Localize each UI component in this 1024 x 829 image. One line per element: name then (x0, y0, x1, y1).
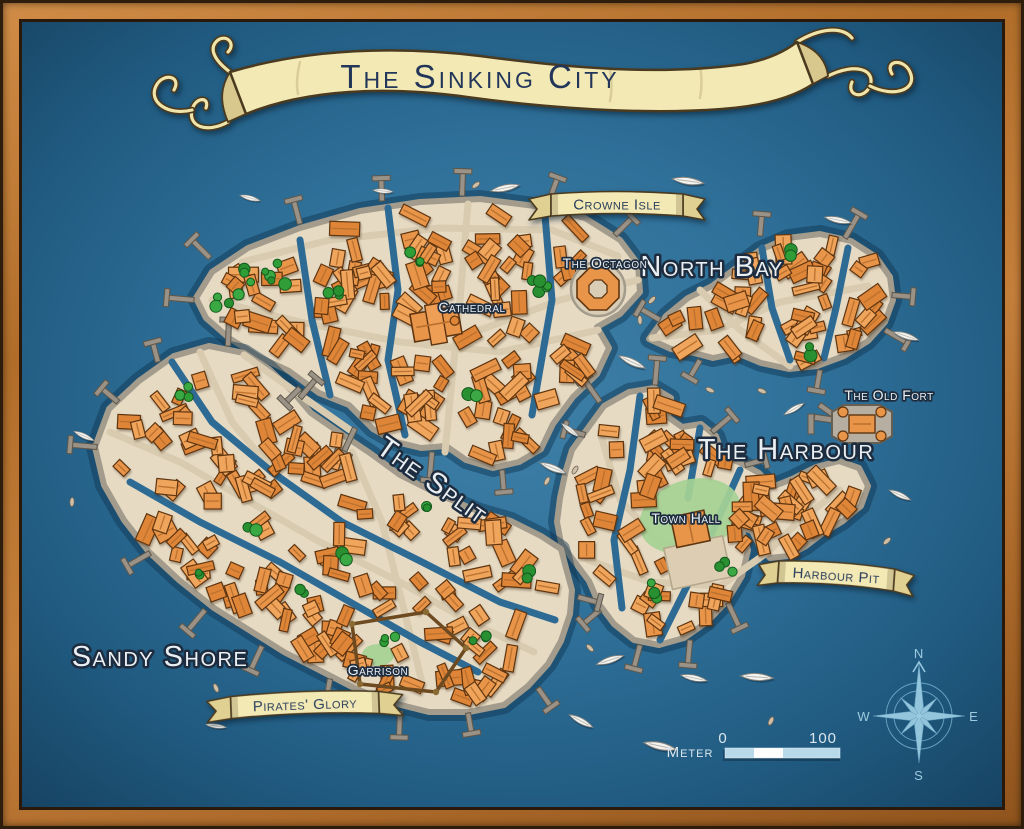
label-sandy-shore: Sandy Shore (72, 641, 249, 673)
building (609, 441, 624, 457)
tree (295, 584, 305, 594)
compass-east-label: E (969, 709, 979, 724)
map-frame: North Bay The Harbour Sandy Shore The Sp… (0, 0, 1024, 829)
label-garrison: Garrison (348, 662, 408, 678)
rowboat (638, 315, 643, 324)
compass-north-label: N (914, 646, 924, 661)
building (204, 493, 221, 509)
building (511, 290, 527, 314)
building (687, 306, 703, 330)
tree (268, 277, 275, 284)
building (360, 405, 376, 421)
tree (481, 631, 491, 641)
tree (471, 390, 483, 402)
tree (233, 289, 244, 300)
building (689, 592, 705, 608)
label-town-hall: Town Hall (651, 510, 720, 526)
building (485, 520, 502, 546)
building (807, 266, 823, 283)
tree (262, 268, 269, 275)
tree (195, 569, 202, 576)
banner-crowne-isle-text: Crowne Isle (573, 197, 661, 214)
building (414, 355, 431, 372)
tree (210, 300, 222, 312)
building (598, 424, 619, 437)
compass-south-label: S (914, 768, 924, 783)
building (432, 281, 446, 293)
map-title: The Sinking City (340, 58, 619, 95)
city-map-svg: North Bay The Harbour Sandy Shore The Sp… (22, 22, 1002, 807)
scale-segment-1 (725, 748, 754, 758)
scale-segment-2 (754, 748, 783, 758)
label-the-octagon: The Octagon (563, 255, 648, 271)
tree (785, 250, 796, 261)
tree (647, 579, 655, 587)
tree (423, 504, 431, 512)
scale-unit-label: Meter (667, 744, 714, 761)
building (329, 249, 345, 268)
building (330, 432, 343, 448)
tree (224, 299, 233, 308)
building (391, 367, 414, 376)
tree (333, 286, 343, 296)
tree (240, 268, 249, 277)
tree (250, 524, 262, 536)
tree (184, 393, 193, 402)
tree (405, 247, 416, 258)
tree (805, 343, 813, 351)
tree (534, 275, 546, 287)
building (393, 494, 405, 511)
tree (381, 635, 388, 642)
tree (340, 554, 352, 566)
map-canvas: North Bay The Harbour Sandy Shore The Sp… (19, 19, 1005, 810)
building (579, 542, 595, 559)
rowboat (70, 497, 75, 506)
compass-west-label: W (857, 709, 870, 724)
label-cathedral: Cathedral (438, 299, 505, 315)
label-the-harbour: The Harbour (698, 434, 875, 466)
scale-start-label: 0 (718, 730, 727, 747)
tree (184, 382, 193, 391)
tree (279, 278, 292, 291)
scale-end-label: 100 (809, 730, 837, 747)
building (356, 266, 372, 281)
wooden-frame: North Bay The Harbour Sandy Shore The Sp… (3, 3, 1021, 826)
building (169, 546, 183, 562)
scale-segment-3 (783, 748, 840, 758)
building (357, 509, 373, 519)
building (314, 298, 329, 315)
building (173, 412, 192, 426)
tree (247, 278, 255, 286)
building (380, 293, 389, 309)
building (234, 310, 250, 324)
tree (175, 390, 185, 400)
label-north-bay: North Bay (640, 251, 783, 283)
tree (522, 573, 532, 583)
tree (323, 288, 334, 299)
building (732, 502, 752, 512)
tree (728, 567, 737, 576)
tree (469, 637, 477, 645)
building (288, 462, 304, 474)
building (218, 454, 235, 472)
tree (390, 632, 399, 641)
tree (715, 562, 725, 572)
tree (416, 258, 424, 266)
building (155, 478, 178, 495)
label-the-old-fort: The Old Fort (844, 387, 933, 403)
tree (273, 259, 282, 268)
building (447, 547, 460, 567)
tree (649, 587, 660, 598)
building (490, 278, 499, 301)
building (333, 522, 344, 545)
building (329, 221, 359, 236)
